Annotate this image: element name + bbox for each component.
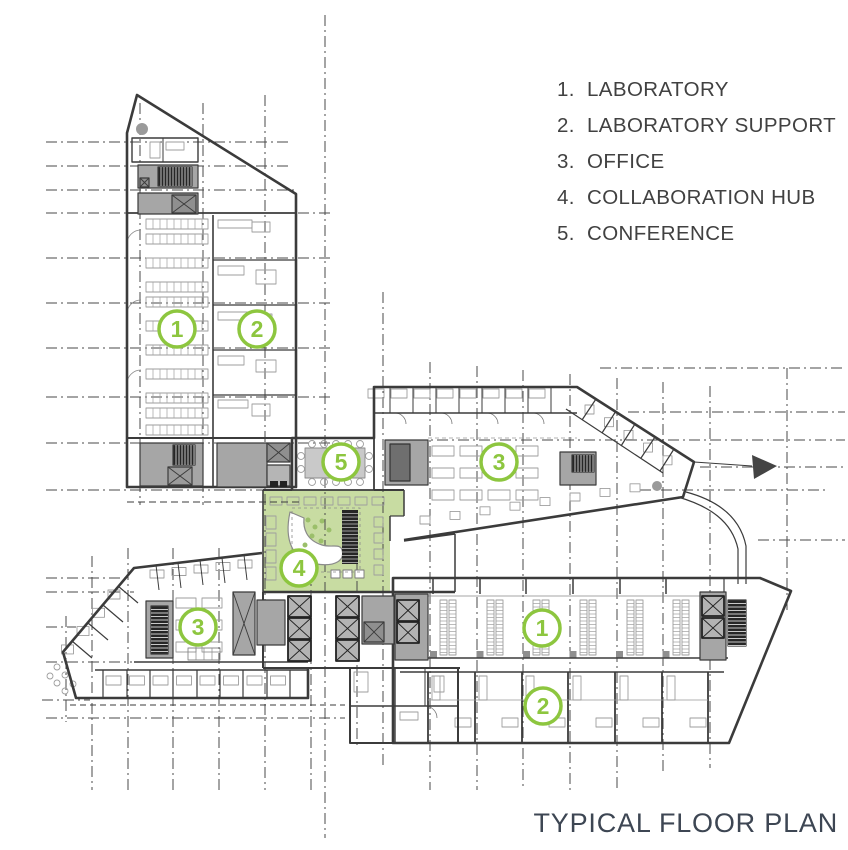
legend-label: LABORATORY (587, 78, 729, 114)
svg-text:3: 3 (493, 449, 506, 475)
legend-item-collaboration-hub: 4. COLLABORATION HUB (557, 186, 836, 222)
room-badge-1: 1 (159, 311, 195, 347)
legend-item-laboratory: 1. LABORATORY (557, 78, 836, 114)
svg-text:2: 2 (251, 316, 264, 342)
legend-item-conference: 5. CONFERENCE (557, 222, 836, 258)
legend-label: LABORATORY SUPPORT (587, 114, 836, 150)
legend-num: 2. (557, 114, 587, 150)
room-badge-1: 1 (524, 610, 560, 646)
legend-label: CONFERENCE (587, 222, 735, 258)
svg-text:2: 2 (537, 693, 550, 719)
room-badge-2: 2 (525, 688, 561, 724)
room-badge-2: 2 (239, 311, 275, 347)
legend-label: COLLABORATION HUB (587, 186, 816, 222)
room-badge-3: 3 (481, 444, 517, 480)
svg-text:3: 3 (192, 614, 205, 640)
svg-text:1: 1 (171, 316, 184, 342)
svg-text:5: 5 (335, 449, 348, 475)
legend-item-laboratory-support: 2. LABORATORY SUPPORT (557, 114, 836, 150)
svg-text:1: 1 (536, 615, 549, 641)
legend-num: 4. (557, 186, 587, 222)
room-badge-3: 3 (180, 609, 216, 645)
room-badge-4: 4 (281, 550, 317, 586)
legend-label: OFFICE (587, 150, 665, 186)
legend-num: 1. (557, 78, 587, 114)
legend-item-office: 3. OFFICE (557, 150, 836, 186)
room-badge-5: 5 (323, 444, 359, 480)
svg-text:4: 4 (293, 555, 306, 581)
legend: 1. LABORATORY 2. LABORATORY SUPPORT 3. O… (557, 78, 836, 258)
legend-num: 5. (557, 222, 587, 258)
floor-plan-page: 12534312 1. LABORATORY 2. LABORATORY SUP… (0, 0, 848, 850)
legend-num: 3. (557, 150, 587, 186)
plan-title: TYPICAL FLOOR PLAN (534, 808, 838, 839)
